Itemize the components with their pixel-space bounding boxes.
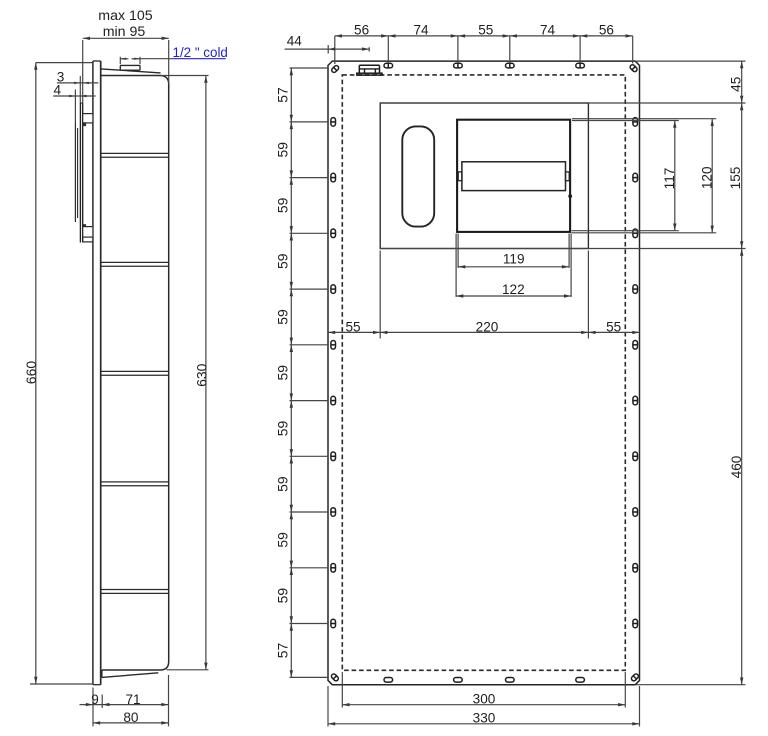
svg-text:9: 9 xyxy=(91,692,99,707)
svg-text:630: 630 xyxy=(194,363,210,387)
svg-text:59: 59 xyxy=(274,365,290,381)
svg-text:57: 57 xyxy=(274,643,290,659)
svg-text:55: 55 xyxy=(478,23,493,38)
svg-text:59: 59 xyxy=(274,476,290,492)
svg-text:56: 56 xyxy=(599,23,614,38)
svg-text:74: 74 xyxy=(540,23,556,38)
svg-text:4: 4 xyxy=(54,83,62,98)
svg-text:59: 59 xyxy=(274,532,290,548)
svg-text:119: 119 xyxy=(503,252,525,267)
svg-text:117: 117 xyxy=(662,168,677,190)
svg-text:59: 59 xyxy=(274,253,290,269)
svg-text:55: 55 xyxy=(345,319,360,334)
svg-text:45: 45 xyxy=(729,77,744,92)
svg-text:59: 59 xyxy=(274,309,290,325)
svg-text:300: 300 xyxy=(473,692,496,707)
svg-text:330: 330 xyxy=(473,711,496,726)
svg-text:59: 59 xyxy=(274,588,290,604)
svg-text:1/2 " cold: 1/2 " cold xyxy=(173,45,228,60)
svg-text:155: 155 xyxy=(728,167,743,190)
svg-text:59: 59 xyxy=(274,421,290,437)
svg-text:71: 71 xyxy=(125,692,140,707)
svg-text:57: 57 xyxy=(274,87,290,103)
svg-text:460: 460 xyxy=(729,455,744,478)
svg-text:56: 56 xyxy=(354,23,369,38)
svg-text:120: 120 xyxy=(700,166,715,189)
svg-text:660: 660 xyxy=(23,361,39,385)
svg-text:44: 44 xyxy=(287,34,303,49)
svg-text:122: 122 xyxy=(502,282,525,297)
svg-text:59: 59 xyxy=(274,142,290,158)
svg-text:80: 80 xyxy=(123,710,139,725)
svg-text:220: 220 xyxy=(476,319,499,334)
svg-text:74: 74 xyxy=(413,23,429,38)
svg-text:min 95: min 95 xyxy=(103,24,146,40)
svg-text:max 105: max 105 xyxy=(98,8,153,24)
svg-text:55: 55 xyxy=(606,319,621,334)
svg-text:59: 59 xyxy=(274,197,290,213)
